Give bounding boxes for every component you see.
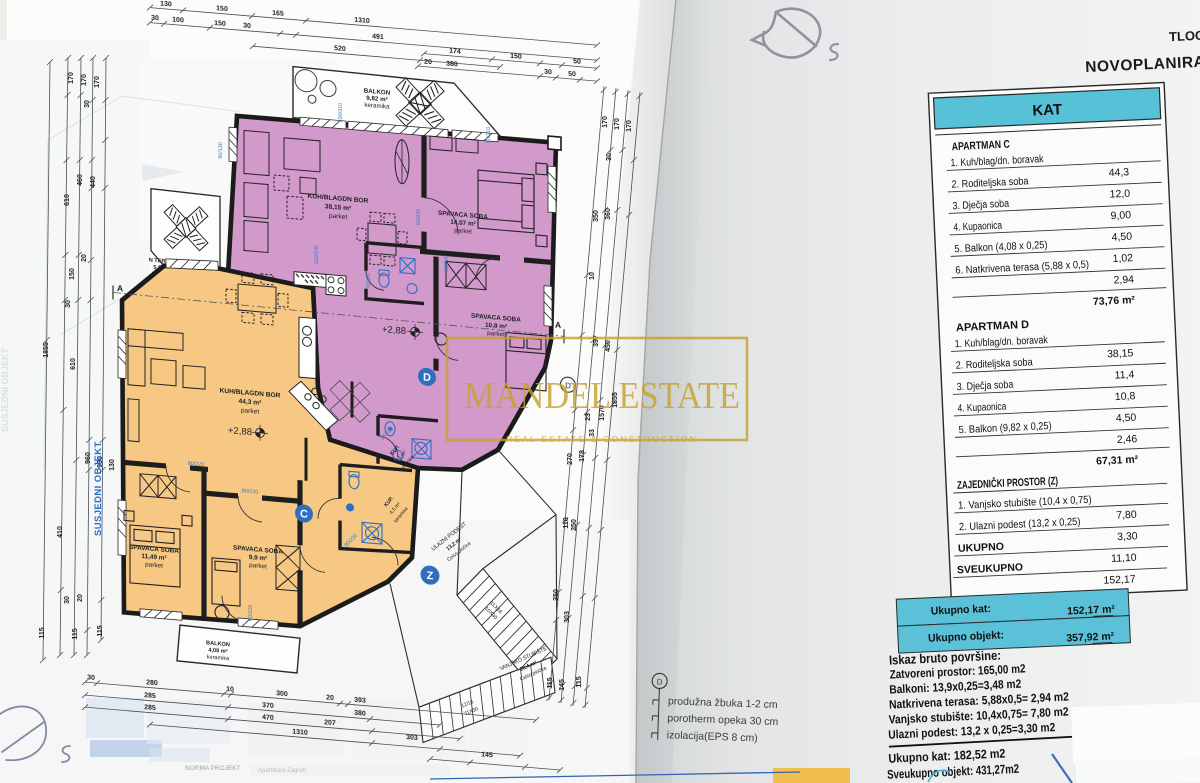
svg-text:393: 393: [354, 697, 366, 705]
svg-text:150: 150: [214, 20, 226, 28]
svg-text:460: 460: [77, 174, 84, 186]
svg-text:20: 20: [424, 59, 432, 67]
svg-text:370: 370: [262, 702, 274, 710]
svg-text:11,10: 11,10: [1111, 552, 1137, 565]
svg-text:960: 960: [85, 452, 92, 464]
svg-text:30: 30: [65, 300, 72, 308]
svg-text:Apartmani Zagreb: Apartmani Zagreb: [258, 768, 307, 774]
svg-text:285: 285: [144, 692, 156, 700]
svg-text:491: 491: [372, 33, 384, 41]
svg-text:90/210: 90/210: [486, 127, 492, 144]
svg-text:70/220: 70/220: [366, 272, 372, 289]
svg-text:150: 150: [216, 5, 228, 13]
svg-text:11,4: 11,4: [1114, 369, 1134, 382]
svg-text:350: 350: [593, 210, 600, 222]
svg-text:174: 174: [449, 48, 461, 56]
svg-text:30: 30: [606, 153, 613, 161]
svg-text:80/130: 80/130: [218, 142, 224, 159]
svg-text:50: 50: [568, 71, 576, 79]
svg-text:300: 300: [276, 690, 288, 698]
svg-text:A: A: [117, 283, 123, 293]
svg-text:1,02: 1,02: [1112, 252, 1133, 265]
svg-text:10: 10: [226, 686, 234, 694]
svg-text:D: D: [657, 677, 663, 686]
svg-text:67,31 m²: 67,31 m²: [1096, 454, 1139, 468]
svg-text:250: 250: [571, 519, 578, 531]
svg-text:100: 100: [172, 16, 184, 24]
svg-text:D: D: [423, 372, 431, 385]
svg-text:4. Kupaonica: 4. Kupaonica: [953, 220, 1002, 234]
svg-text:20: 20: [326, 694, 334, 702]
svg-text:610: 610: [64, 194, 71, 206]
svg-text:Z: Z: [427, 570, 434, 583]
svg-text:38,15: 38,15: [1107, 347, 1134, 360]
svg-text:1310: 1310: [354, 17, 370, 25]
svg-text:450: 450: [605, 340, 612, 352]
svg-text:20: 20: [77, 594, 84, 602]
svg-text:MANDEL ESTATE: MANDEL ESTATE: [464, 375, 740, 417]
svg-text:115: 115: [576, 676, 583, 687]
svg-text:10: 10: [589, 272, 596, 280]
svg-text:80/220: 80/220: [248, 605, 254, 622]
svg-text:115: 115: [547, 677, 554, 688]
svg-text:C: C: [300, 508, 308, 521]
svg-text:4,50: 4,50: [1116, 412, 1137, 425]
svg-text:30: 30: [87, 674, 95, 682]
svg-text:3,30: 3,30: [1117, 530, 1138, 543]
svg-text:280: 280: [146, 679, 158, 687]
svg-text:REAL ESTATE & CONSTRUCTION: REAL ESTATE & CONSTRUCTION: [506, 434, 698, 444]
svg-text:30: 30: [544, 69, 552, 77]
svg-text:4,50: 4,50: [1111, 231, 1132, 244]
svg-text:145: 145: [481, 751, 493, 759]
svg-text:44,3: 44,3: [1108, 166, 1129, 179]
svg-text:380: 380: [354, 710, 366, 718]
svg-text:1310: 1310: [292, 729, 308, 737]
svg-text:150: 150: [510, 53, 522, 61]
svg-text:7,80: 7,80: [1116, 509, 1137, 522]
svg-text:170: 170: [94, 76, 101, 88]
svg-text:2,94: 2,94: [1113, 274, 1134, 287]
svg-text:178: 178: [579, 450, 586, 462]
svg-text:285: 285: [144, 704, 156, 712]
svg-text:115: 115: [39, 627, 46, 638]
svg-text:115: 115: [72, 628, 79, 639]
svg-text:170: 170: [626, 120, 633, 132]
svg-text:2,46: 2,46: [1117, 433, 1138, 446]
svg-text:20: 20: [81, 254, 88, 262]
svg-text:145: 145: [559, 679, 566, 691]
svg-text:150: 150: [69, 268, 76, 280]
svg-text:1855: 1855: [43, 342, 50, 358]
svg-text:170: 170: [81, 74, 88, 86]
svg-text:A: A: [555, 320, 561, 330]
svg-text:+2,88: +2,88: [228, 425, 252, 438]
svg-text:30: 30: [243, 22, 251, 30]
svg-text:303: 303: [406, 734, 418, 742]
svg-text:610: 610: [70, 358, 77, 370]
svg-text:4. Kupaonica: 4. Kupaonica: [957, 401, 1006, 415]
svg-text:230/310: 230/310: [338, 103, 344, 123]
svg-text:+2,88: +2,88: [382, 324, 406, 337]
svg-text:80/220: 80/220: [444, 255, 450, 272]
svg-text:SUSJEDNI OBJEKT: SUSJEDNI OBJEKT: [93, 441, 104, 536]
svg-text:110: 110: [563, 517, 570, 528]
svg-text:170: 170: [614, 118, 621, 130]
svg-text:73,76 m²: 73,76 m²: [1093, 294, 1136, 308]
svg-text:115: 115: [97, 625, 104, 636]
svg-text:350: 350: [553, 589, 560, 601]
svg-text:410: 410: [57, 526, 64, 538]
svg-text:165: 165: [272, 10, 284, 18]
svg-text:520: 520: [334, 45, 346, 53]
svg-text:207: 207: [324, 719, 336, 727]
svg-text:152,17: 152,17: [1103, 573, 1136, 586]
svg-text:TLOCRT: TLOCRT: [1169, 27, 1200, 44]
svg-text:170: 170: [602, 116, 609, 128]
svg-text:30: 30: [84, 100, 91, 108]
svg-text:130: 130: [160, 0, 172, 8]
svg-text:10,8: 10,8: [1115, 390, 1136, 403]
svg-text:170: 170: [68, 72, 75, 84]
svg-text:440: 440: [90, 176, 97, 188]
svg-text:50: 50: [573, 58, 581, 66]
svg-text:80/220: 80/220: [416, 209, 422, 226]
svg-text:130: 130: [109, 459, 116, 471]
svg-text:12,0: 12,0: [1109, 188, 1130, 201]
svg-text:380: 380: [446, 60, 458, 68]
svg-text:NORMA PROJEKT: NORMA PROJEKT: [185, 765, 241, 772]
svg-text:230/240: 230/240: [314, 245, 320, 265]
svg-text:SUSJEDNI OBJEKT: SUSJEDNI OBJEKT: [0, 347, 10, 432]
svg-text:30: 30: [64, 596, 71, 604]
svg-text:UKUPNO: UKUPNO: [958, 541, 1004, 555]
svg-text:9,00: 9,00: [1110, 209, 1131, 222]
svg-text:303: 303: [564, 611, 571, 623]
svg-text:270: 270: [567, 453, 574, 465]
svg-text:KAT: KAT: [1032, 101, 1062, 119]
svg-text:360: 360: [605, 208, 612, 220]
svg-text:470: 470: [262, 714, 274, 722]
svg-text:30: 30: [151, 15, 159, 23]
